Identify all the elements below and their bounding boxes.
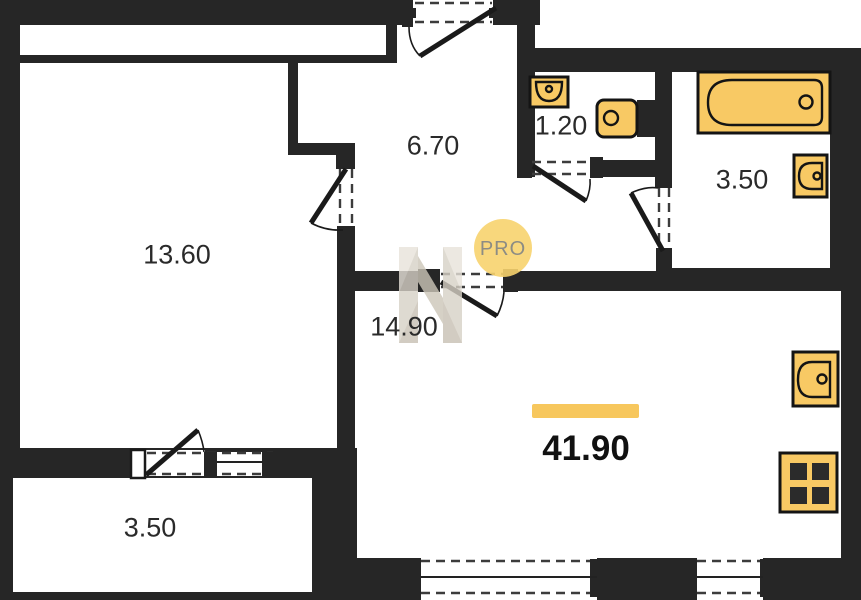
bathroom-sink-icon [794, 155, 827, 197]
wc-sink-icon [530, 77, 568, 107]
stove-icon [780, 453, 837, 512]
pro-badge: PRO [474, 219, 532, 277]
bedroom-door [311, 169, 352, 230]
living-room-window-large [413, 559, 598, 597]
floor-plan: PRO 13.60 6.70 1.20 3.50 14.90 3.50 41.9… [0, 0, 861, 600]
room-label-wc: 1.20 [535, 111, 588, 142]
room-label-bathroom: 3.50 [716, 165, 769, 196]
bathtub-icon [698, 72, 830, 133]
room-label-kitchen-living: 14.90 [370, 312, 438, 343]
room-label-bedroom: 13.60 [143, 240, 211, 271]
floor-plan-drawing: PRO [0, 0, 861, 600]
entrance-door [409, 3, 496, 56]
room-label-hall: 6.70 [407, 131, 460, 162]
top-window-strip [20, 25, 386, 55]
room-label-balcony: 3.50 [124, 513, 177, 544]
total-area-label: 41.90 [542, 429, 630, 469]
total-area-highlight [532, 404, 639, 418]
wc-door [532, 162, 590, 201]
living-room-window-small [689, 559, 768, 597]
toilet-icon [597, 100, 637, 137]
kitchen-sink-icon [793, 352, 838, 406]
balcony-door-window [131, 430, 275, 478]
pro-badge-text: PRO [480, 238, 526, 260]
bathroom-door [631, 188, 669, 251]
